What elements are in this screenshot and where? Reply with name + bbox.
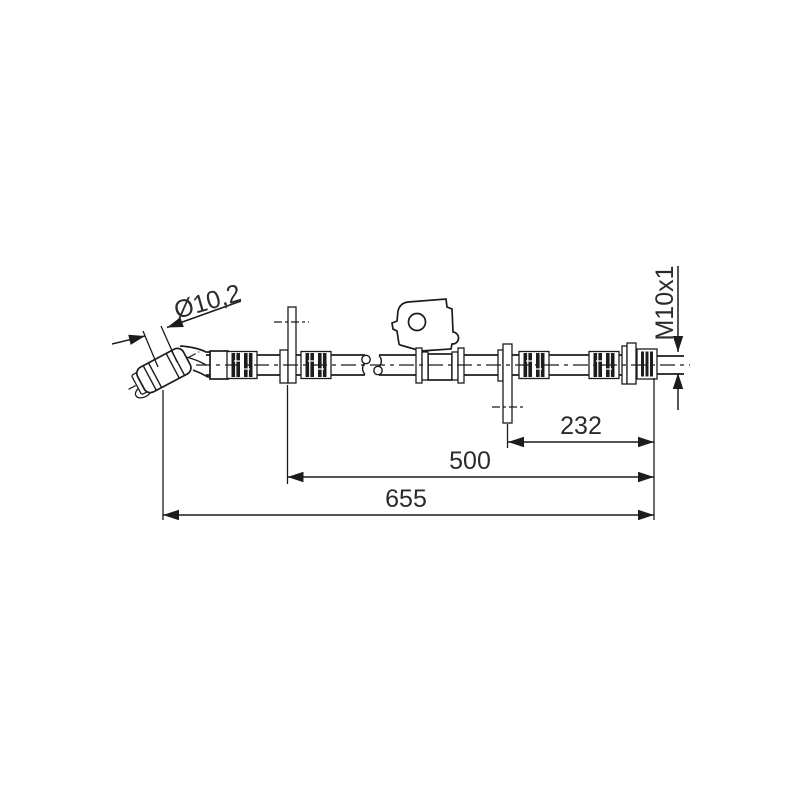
fitting-washer [627,343,636,384]
mounting-plate-2 [498,344,512,423]
dimension-500-label: 500 [449,447,491,475]
banjo-fitting [122,339,228,402]
mounting-bracket [392,299,459,351]
dimension-500: 500 [288,447,655,477]
dimension-232-label: 232 [560,412,602,440]
thread-annotation: M10x1 [651,265,679,410]
brake-hose-technical-drawing: 232 500 655 Ø10,2 M10x1 [0,0,800,800]
diameter-label: Ø10,2 [171,279,244,325]
thread-label: M10x1 [651,265,679,340]
mounting-plate-1 [280,307,296,383]
dimension-655: 655 [163,485,654,515]
end-fitting [622,343,684,384]
banjo-body [134,346,193,395]
dimension-655-label: 655 [385,485,427,513]
bracket-hole [409,314,426,331]
dimension-232: 232 [508,412,654,442]
